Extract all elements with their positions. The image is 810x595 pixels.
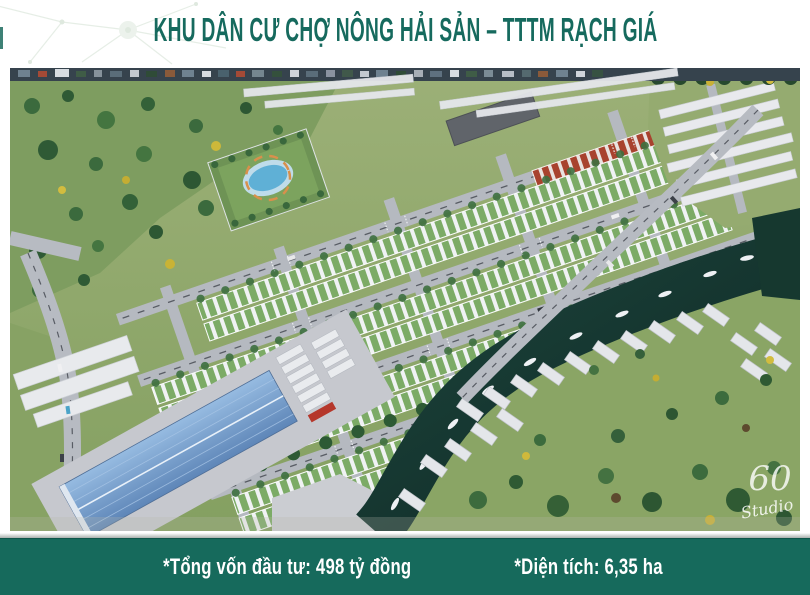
masterplan-aerial-render: 60 Studio [10, 68, 800, 531]
slide-footer: *Tổng vốn đầu tư: 498 tỷ đồng *Diện tích… [0, 538, 810, 595]
page-title: KHU DÂN CƯ CHỢ NÔNG HẢI SẢN – TTTM RẠCH … [153, 10, 657, 50]
watermark-number: 60 [748, 459, 791, 499]
investment-label: *Tổng vốn đầu tư: 498 tỷ đồng [163, 554, 411, 580]
aerial-render-graphic: 60 Studio [10, 68, 800, 531]
area-label: *Diện tích: 6,35 ha [514, 554, 662, 580]
slide-header: KHU DÂN CƯ CHỢ NÔNG HẢI SẢN – TTTM RẠCH … [0, 0, 810, 66]
studio-watermark: 60 Studio [739, 459, 794, 523]
